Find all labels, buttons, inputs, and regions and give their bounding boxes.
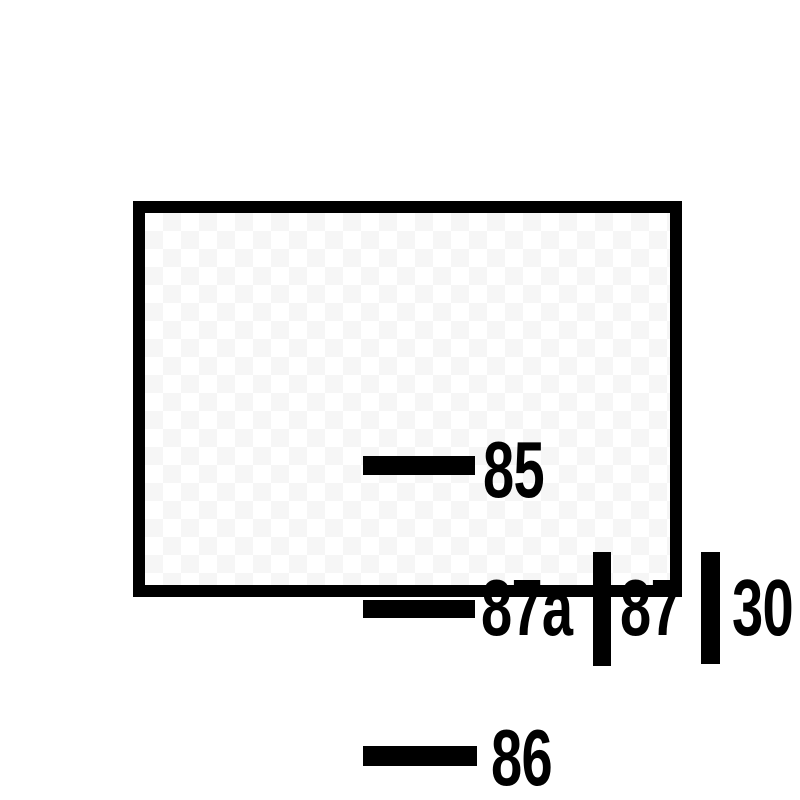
pin-87-terminal-blade (593, 552, 611, 666)
pin-85-label: 85 (483, 430, 544, 510)
pin-86-terminal-blade (363, 746, 477, 766)
diagram-frame: 85 87a 87 30 86 (133, 201, 682, 597)
pin-87a-label: 87a (481, 568, 572, 648)
pin-85-terminal-blade (363, 456, 475, 475)
pin-30-terminal-blade (701, 552, 720, 664)
pin-87-label: 87 (620, 568, 681, 648)
pin-86-label: 86 (491, 718, 552, 798)
pin-87a-terminal-blade (363, 600, 475, 618)
relay-pinout-diagram: 85 87a 87 30 86 (0, 0, 800, 800)
pin-30-label: 30 (732, 568, 793, 648)
